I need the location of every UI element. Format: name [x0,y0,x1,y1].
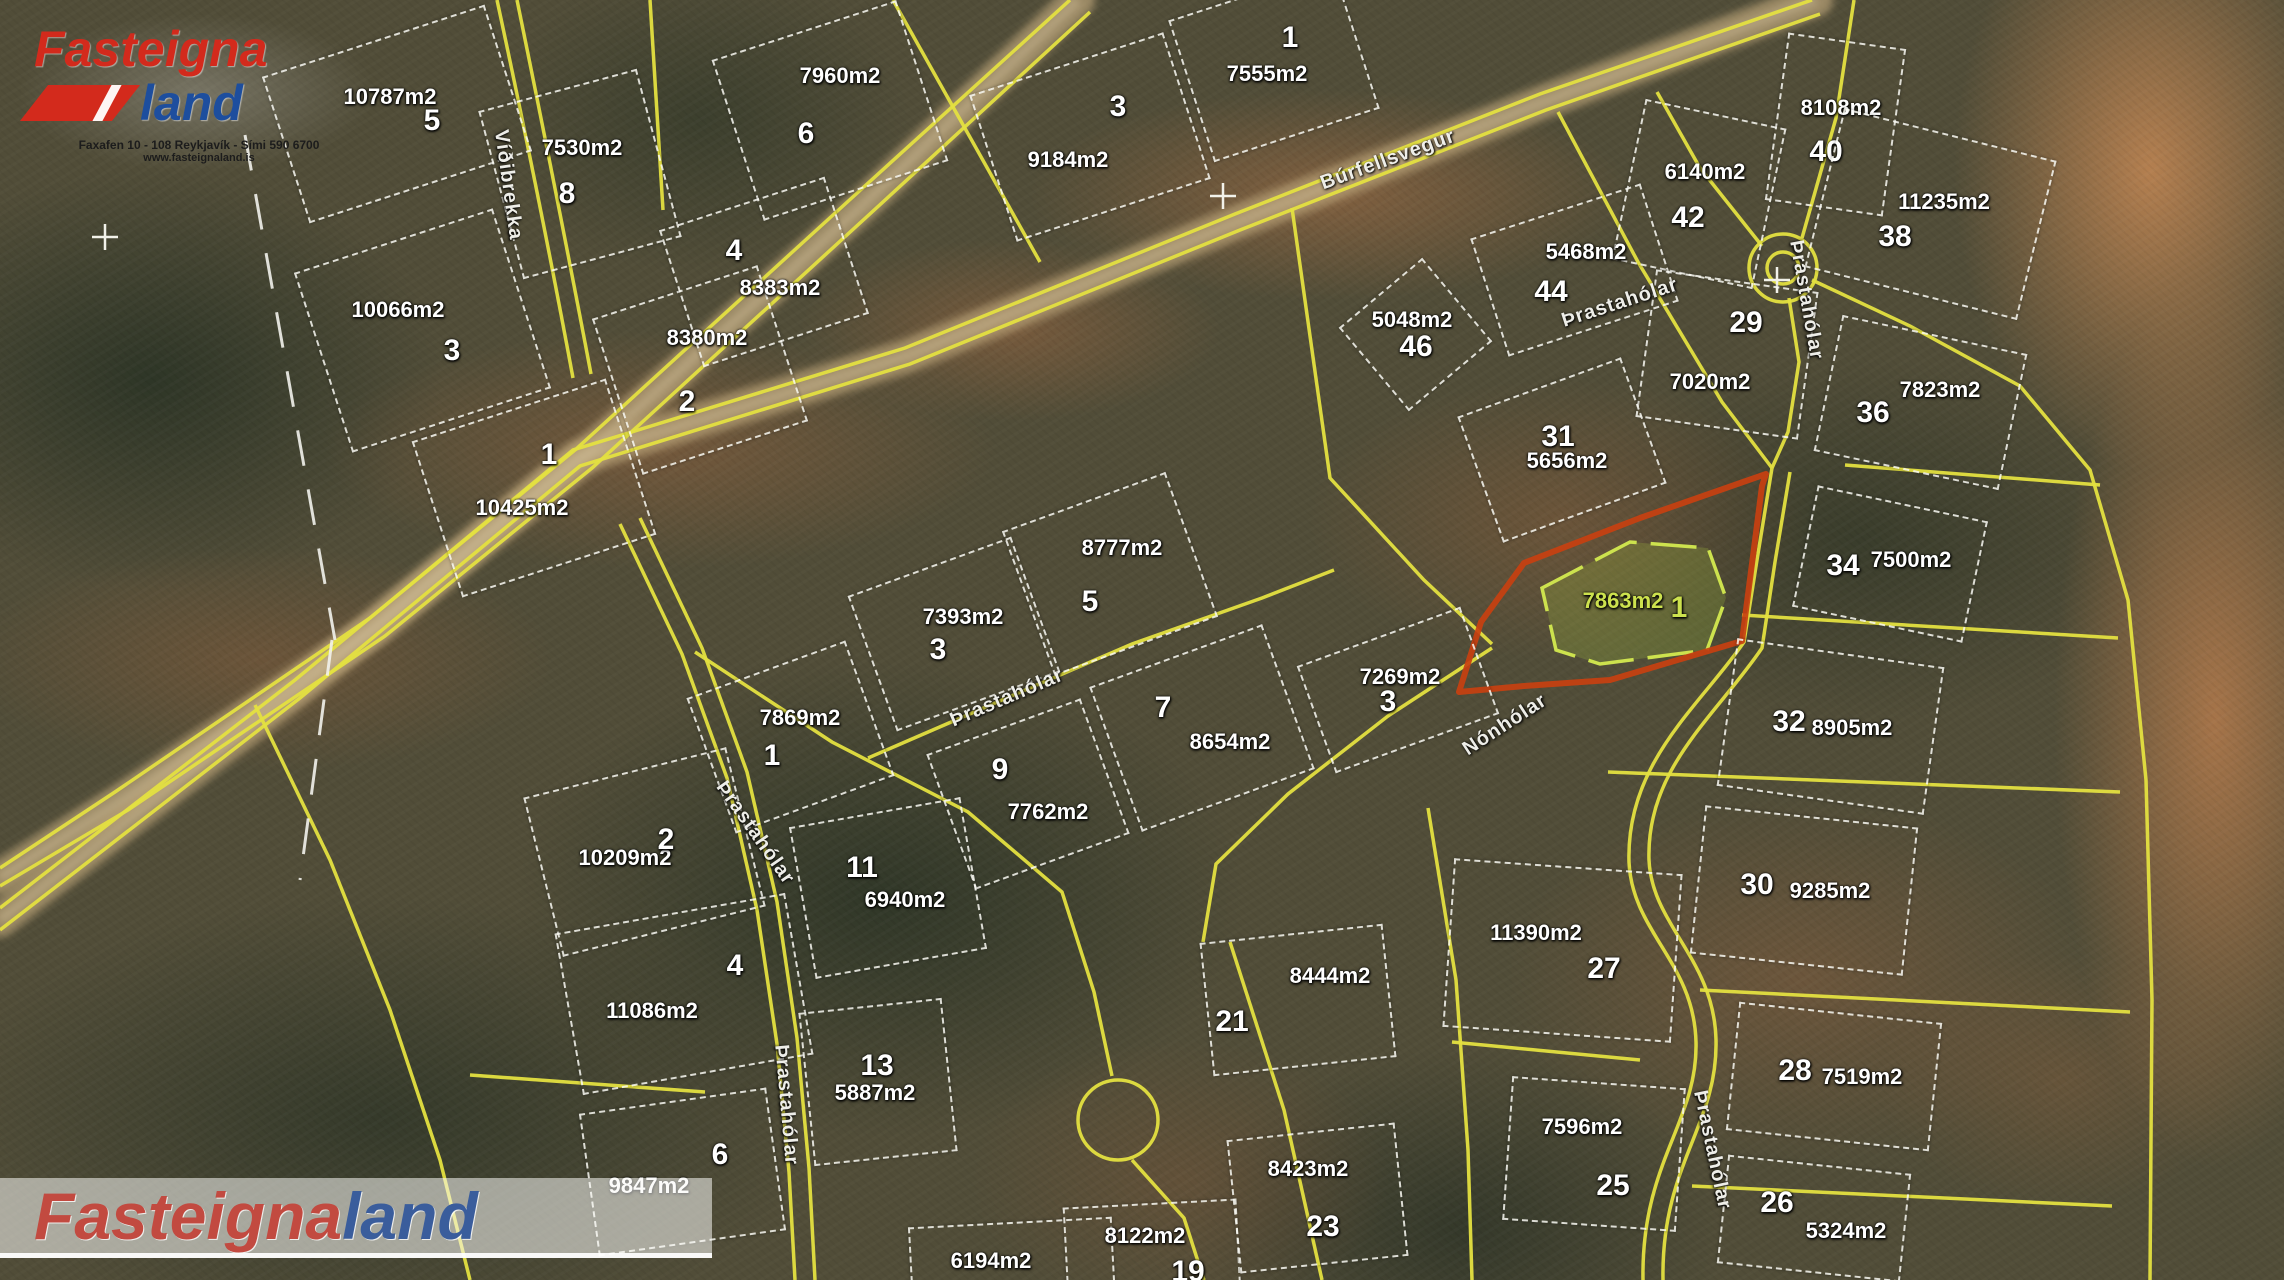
parcel-area-label: 8654m2 [1190,729,1271,755]
parcel-area-label: 7020m2 [1670,369,1751,395]
parcel-number-label: 36 [1856,396,1889,430]
parcel-boundary [1200,924,1397,1076]
parcel-number-label: 3 [1110,90,1127,124]
parcel-area-label: 7596m2 [1542,1114,1623,1140]
parcel-area-label: 7762m2 [1008,799,1089,825]
parcel-area-label: 7960m2 [800,63,881,89]
parcel-area-label: 6194m2 [951,1248,1032,1274]
parcel-number-label: 4 [727,949,744,983]
parcel-number-label: 46 [1399,330,1432,364]
parcel-area-label: 7823m2 [1900,377,1981,403]
parcel-area-label: 5887m2 [835,1080,916,1106]
parcel-area-label: 7869m2 [760,705,841,731]
parcel-number-label: 5 [1082,585,1099,619]
parcel-number-label: 2 [679,385,696,419]
parcel-number-label: 1 [1671,591,1688,625]
parcel-area-label: 7500m2 [1871,547,1952,573]
parcel-boundary [1226,1123,1408,1274]
plat-map: 10787m257530m287960m269184m237555m218108… [0,0,2284,1280]
parcel-area-label: 7530m2 [542,135,623,161]
parcel-number-label: 32 [1772,705,1805,739]
parcel-number-label: 34 [1826,549,1859,583]
parcel-area-label: 8122m2 [1105,1223,1186,1249]
road-name-label: Búrfellsvegur [1317,125,1458,195]
parcel-number-label: 44 [1534,275,1567,309]
parcel-area-label: 7555m2 [1227,61,1308,87]
parcel-number-label: 1 [1282,21,1299,55]
logo-brand-red: Fasteigna [34,24,364,74]
parcel-boundary [1089,624,1315,832]
parcel-area-label: 7863m2 [1583,588,1664,614]
parcel-number-label: 42 [1671,201,1704,235]
parcel-area-label: 11390m2 [1490,920,1582,946]
watermark-brand-blue: land [342,1178,478,1254]
agency-watermark-bottom: Fasteignaland [0,1178,712,1258]
parcel-area-label: 5324m2 [1806,1218,1887,1244]
parcel-area-label: 11086m2 [606,998,698,1024]
parcel-number-label: 29 [1729,306,1762,340]
agency-address: Faxafen 10 - 108 Reykjavík - Sími 590 67… [34,138,364,152]
agency-website: www.fasteignaland.is [34,152,364,164]
parcel-number-label: 11 [846,851,878,885]
logo-brand-blue: land [140,78,243,128]
parcel-area-label: 8777m2 [1082,535,1163,561]
logo-swoosh-icon [20,85,140,121]
parcel-number-label: 1 [541,438,558,472]
parcel-area-label: 9285m2 [1790,878,1871,904]
parcel-boundary [1502,1076,1686,1232]
parcel-number-label: 31 [1541,420,1574,454]
labels-layer: 10787m257530m287960m269184m237555m218108… [0,0,2284,1280]
parcel-number-label: 1 [764,739,781,773]
parcel-boundary [1442,858,1682,1043]
parcel-boundary [969,32,1211,242]
parcel-area-label: 6940m2 [865,887,946,913]
parcel-area-label: 9184m2 [1028,147,1109,173]
parcel-number-label: 21 [1215,1005,1248,1039]
parcel-number-label: 3 [930,633,947,667]
parcel-number-label: 23 [1306,1210,1339,1244]
watermark-brand-red: Fasteigna [34,1178,342,1254]
parcel-number-label: 7 [1155,691,1172,725]
parcel-number-label: 4 [726,234,743,268]
parcel-area-label: 7269m2 [1360,664,1441,690]
parcel-boundary [712,0,949,220]
parcel-number-label: 25 [1596,1169,1629,1203]
parcel-number-label: 6 [798,117,815,151]
parcel-area-label: 6140m2 [1665,159,1746,185]
parcel-number-label: 38 [1878,220,1911,254]
parcel-number-label: 2 [658,823,675,857]
parcel-number-label: 3 [444,334,461,368]
parcel-number-label: 30 [1740,868,1773,902]
parcel-area-label: 7519m2 [1822,1064,1903,1090]
parcel-area-label: 5468m2 [1546,239,1627,265]
parcel-number-label: 8 [559,177,576,211]
parcel-number-label: 13 [860,1049,893,1083]
parcel-number-label: 3 [1380,685,1397,719]
parcel-area-label: 8444m2 [1290,963,1371,989]
parcel-number-label: 28 [1778,1054,1811,1088]
agency-logo-top: Fasteigna land Faxafen 10 - 108 Reykjaví… [18,14,376,172]
parcel-area-label: 10425m2 [476,495,569,521]
parcel-number-label: 27 [1587,952,1620,986]
parcel-area-label: 8383m2 [740,275,821,301]
parcel-area-label: 11235m2 [1898,189,1990,215]
parcel-number-label: 5 [424,104,441,138]
parcel-area-label: 10066m2 [352,297,445,323]
parcel-area-label: 8423m2 [1268,1156,1349,1182]
parcel-number-label: 26 [1760,1186,1793,1220]
parcel-area-label: 8905m2 [1812,715,1893,741]
parcel-area-label: 7393m2 [923,604,1004,630]
parcel-number-label: 9 [992,753,1009,787]
parcel-number-label: 6 [712,1138,729,1172]
